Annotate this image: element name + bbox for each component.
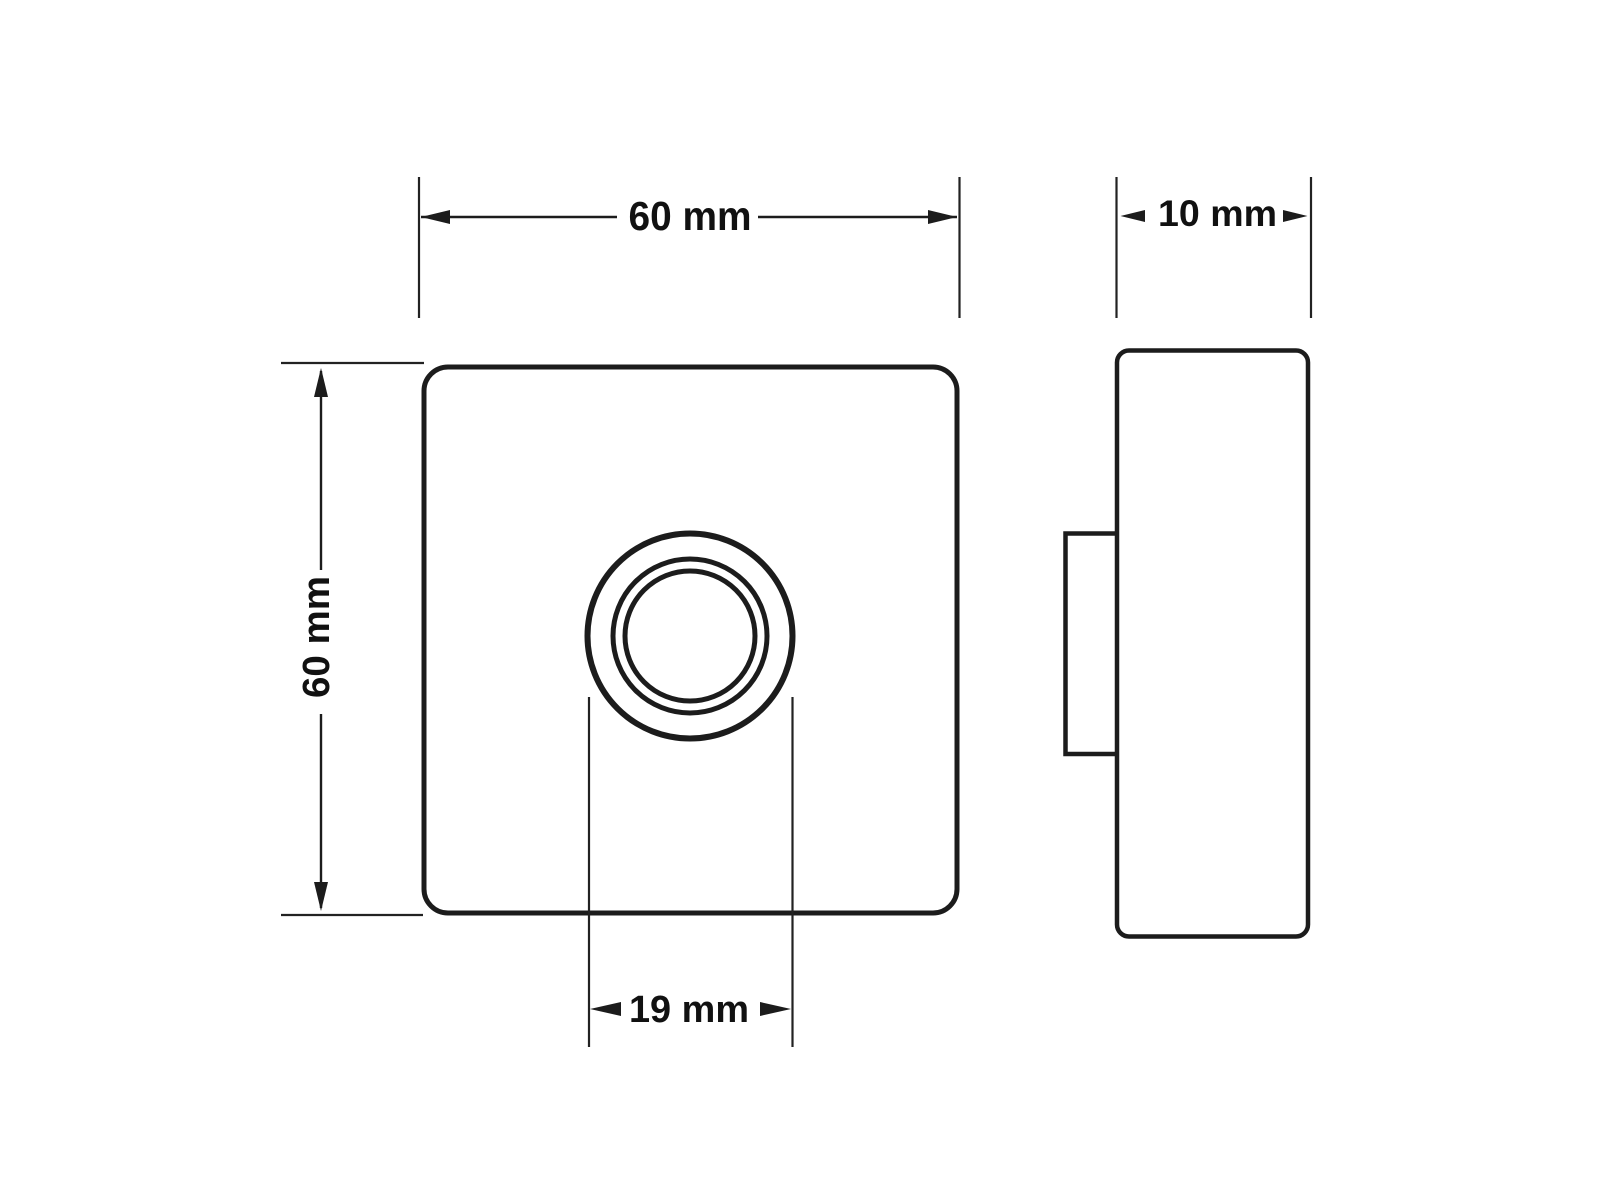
svg-text:60 mm: 60 mm bbox=[629, 193, 752, 239]
svg-text:10 mm: 10 mm bbox=[1158, 193, 1277, 234]
svg-text:19 mm: 19 mm bbox=[629, 989, 749, 1031]
svg-text:60 mm: 60 mm bbox=[296, 576, 338, 698]
